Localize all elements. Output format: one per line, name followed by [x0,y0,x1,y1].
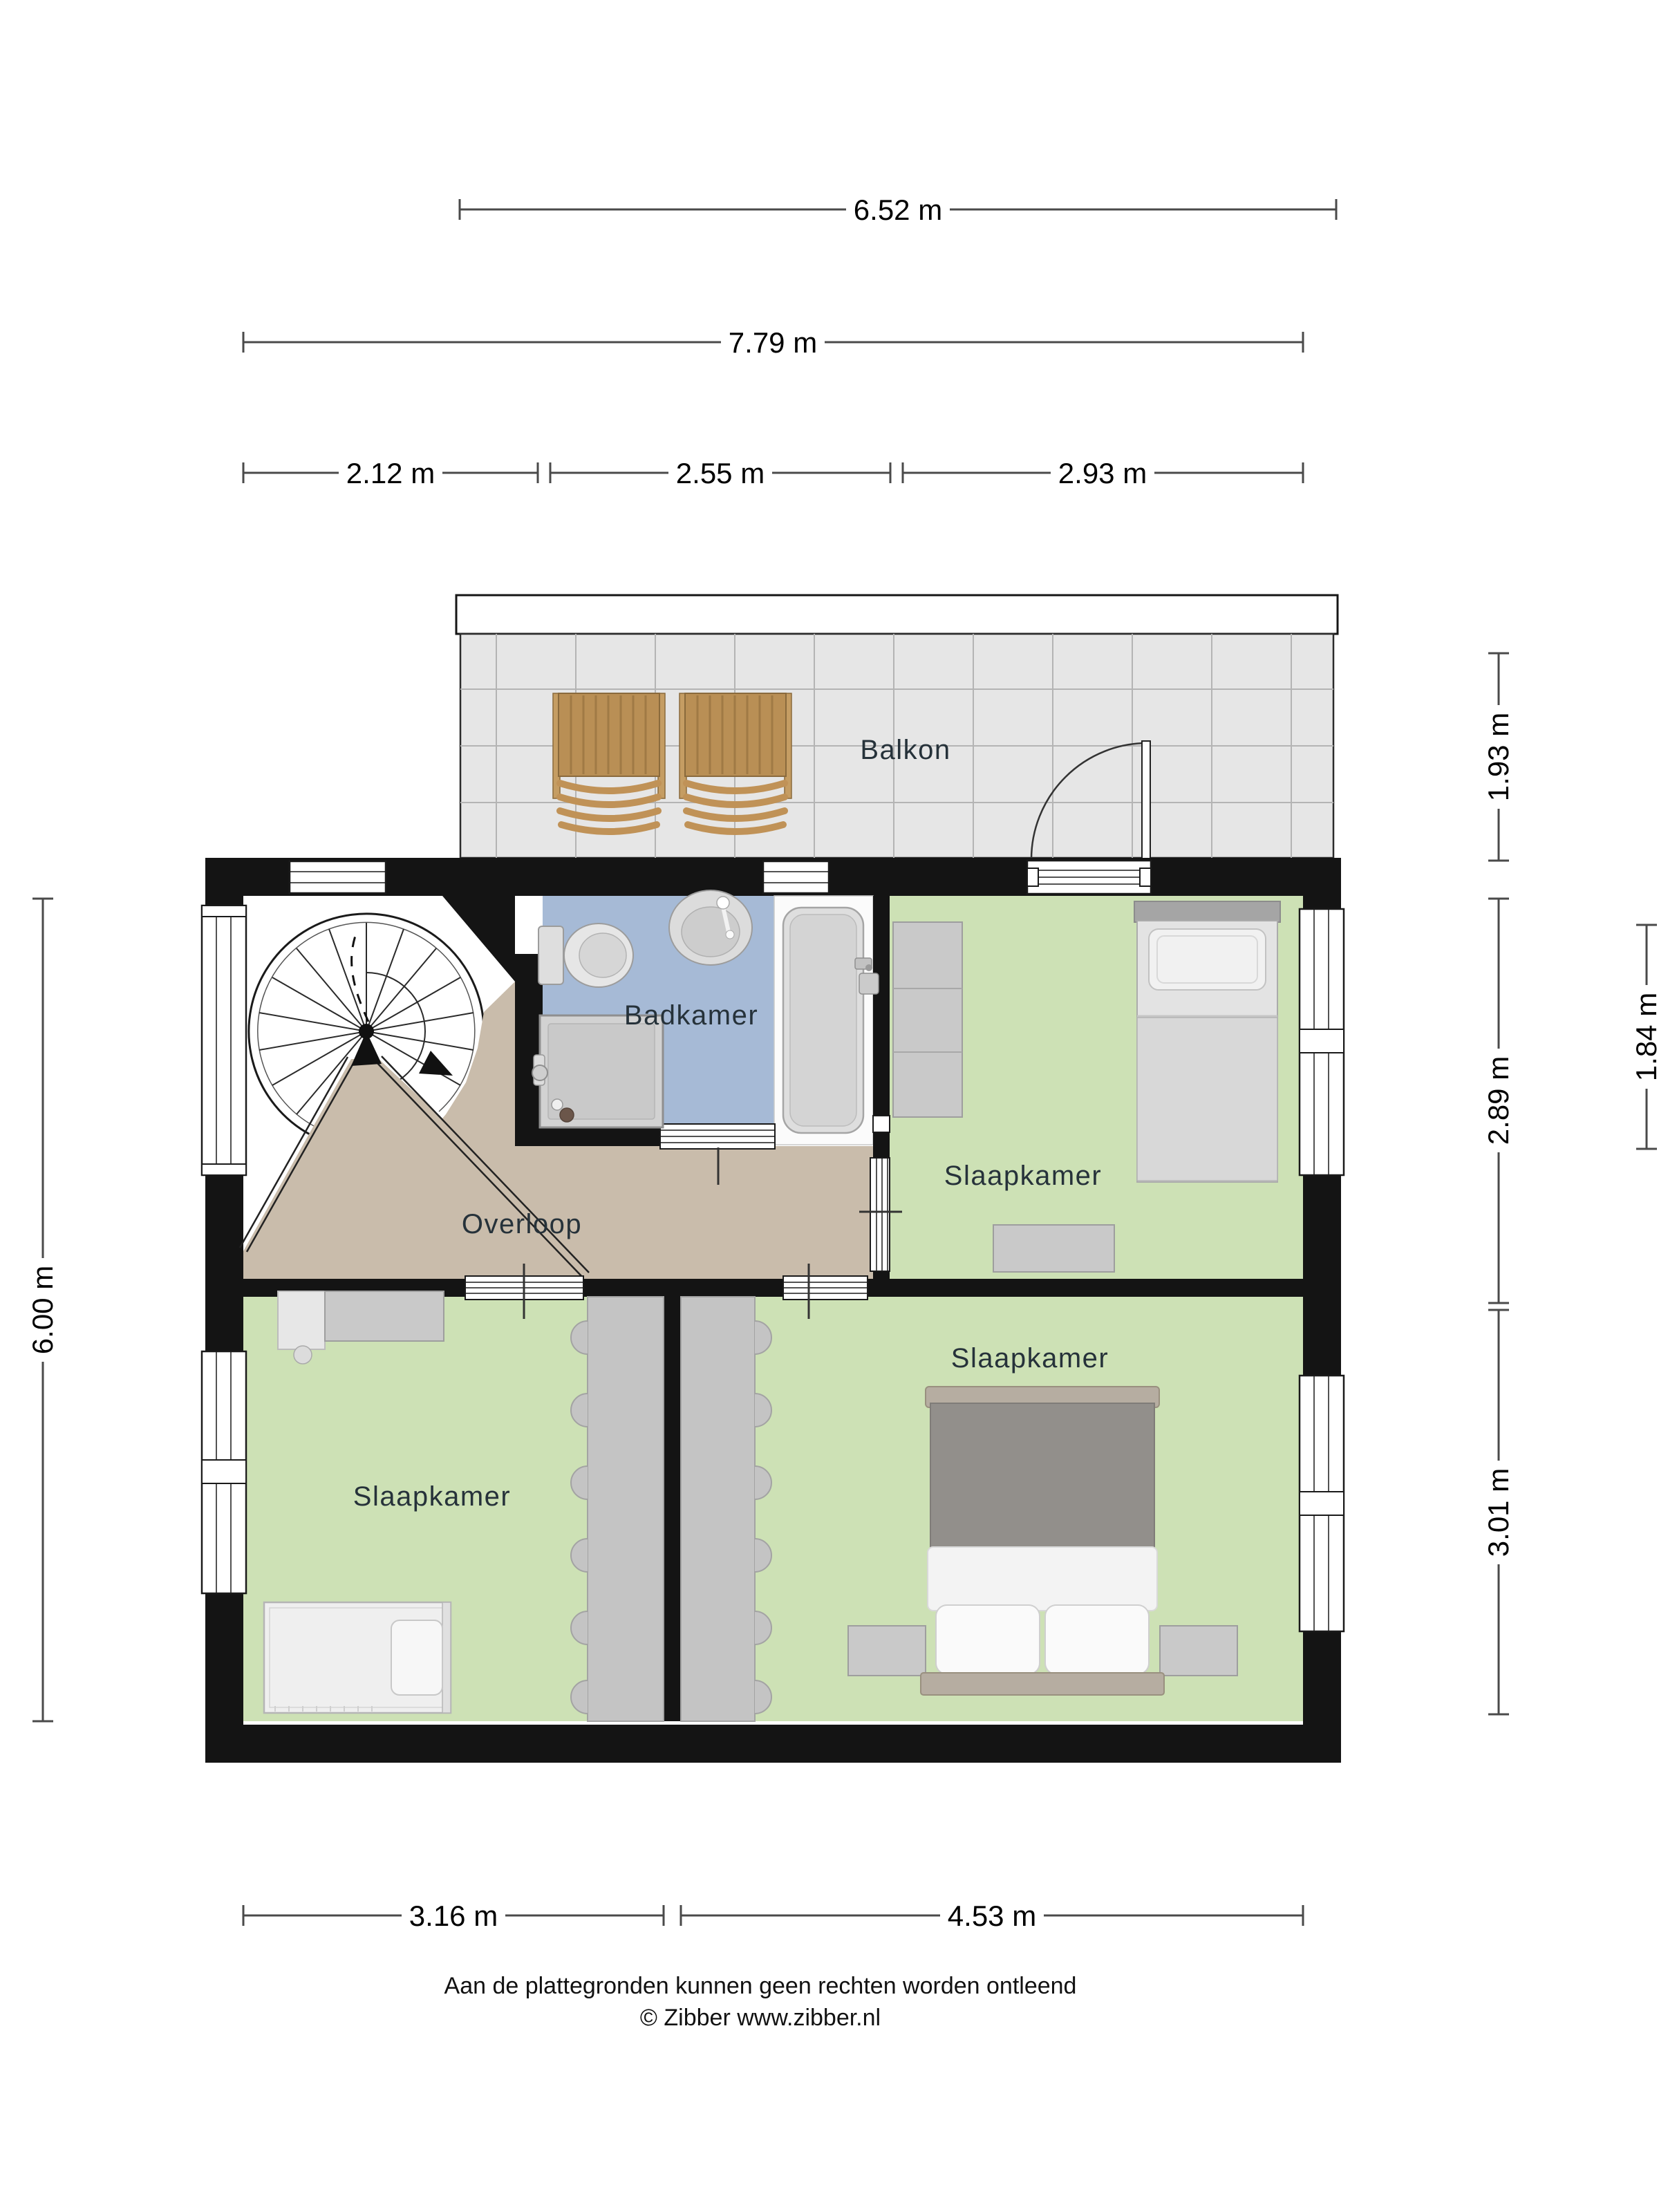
wall-bottom [205,1725,1341,1763]
window-right-bedroom-bottom [1300,1376,1344,1631]
dim-label: 4.53 m [948,1900,1036,1932]
bed-headboard [1134,901,1280,922]
bed-sheet-fold [928,1547,1157,1611]
dim-label: 3.16 m [409,1900,498,1932]
dim-label: 1.84 m [1630,993,1659,1081]
sink [669,890,752,965]
dim-balcony-depth: 1.93 m [1482,653,1515,861]
floorplan-drawing: Balkon Badkamer Overloop Slaapkamer Slaa… [0,0,1659,2212]
single-bed-top [1134,901,1280,1182]
nightstand-right [1160,1626,1237,1676]
bed-pillow [936,1605,1040,1674]
dim-bathroom-depth: 1.84 m [1630,925,1659,1149]
bed-pillow [1045,1605,1149,1674]
dim-label: 2.89 m [1482,1056,1515,1145]
single-bed-left [264,1602,451,1713]
dim-label: 6.00 m [26,1266,59,1354]
wall-niche [873,1116,890,1132]
wall-bedroom-top-left-a [873,896,890,1116]
toilet [538,924,633,987]
nightstand-left [848,1626,926,1676]
window-right-bedroom-top [1300,909,1344,1175]
bed-footboard [921,1673,1164,1695]
footer-copyright: © Zibber www.zibber.nl [640,2005,881,2031]
wall-bedroom-top-left-b [873,1132,890,1159]
dim-bedroom-bottom-depth: 3.01 m [1482,1310,1515,1714]
floorplan-page: Balkon Badkamer Overloop Slaapkamer Slaa… [0,0,1659,2212]
footer-disclaimer: Aan de plattegronden kunnen geen rechten… [444,1973,1077,1999]
window-left-bedroom [202,1351,246,1593]
bed-duvet [930,1403,1154,1551]
dim-label: 3.01 m [1482,1468,1515,1557]
dim-label: 6.52 m [854,194,942,226]
dim-segment-2: 2.55 m [550,457,890,489]
label-slaapkamer-right: Slaapkamer [951,1343,1109,1374]
dresser-top-bedroom [993,1225,1114,1272]
wall-bathroom-bottom [515,1127,662,1146]
bed-pillow [1149,929,1266,990]
dim-label: 2.93 m [1058,457,1147,489]
balcony [456,595,1338,859]
label-badkamer: Badkamer [624,1000,758,1031]
wardrobe-top-bedroom [893,922,962,1117]
dim-total-depth: 6.00 m [26,899,59,1721]
dim-total-width: 7.79 m [243,326,1303,359]
shower-valve [532,1065,547,1080]
window-top-bathroom [763,861,829,893]
balcony-railing [456,595,1338,634]
dim-label: 2.55 m [676,457,765,489]
label-slaapkamer-left: Slaapkamer [353,1481,511,1512]
balcony-door-threshold [1027,861,1151,894]
dim-bedroom-top-depth: 2.89 m [1482,899,1515,1303]
dim-segment-3: 2.93 m [903,457,1303,489]
bed-pillow [391,1620,442,1695]
dim-segment-1: 2.12 m [243,457,538,489]
label-balkon: Balkon [860,735,950,765]
wall-center-vertical [664,1297,681,1721]
dim-label: 2.12 m [346,457,435,489]
shower [532,1015,663,1127]
label-overloop: Overloop [462,1209,582,1239]
dim-balcony-width: 6.52 m [460,194,1336,226]
footer: Aan de plattegronden kunnen geen rechten… [444,1973,1077,2031]
dim-label: 1.93 m [1482,713,1515,801]
label-slaapkamer-top: Slaapkamer [944,1161,1102,1191]
dim-bottom-right-width: 4.53 m [681,1900,1303,1932]
dim-bottom-left-width: 3.16 m [243,1900,664,1932]
bed-duvet [1137,1018,1277,1181]
window-top-stair [290,861,386,893]
window-left-stair [202,906,246,1175]
dim-label: 7.79 m [729,326,817,359]
shower-drain [560,1108,574,1122]
